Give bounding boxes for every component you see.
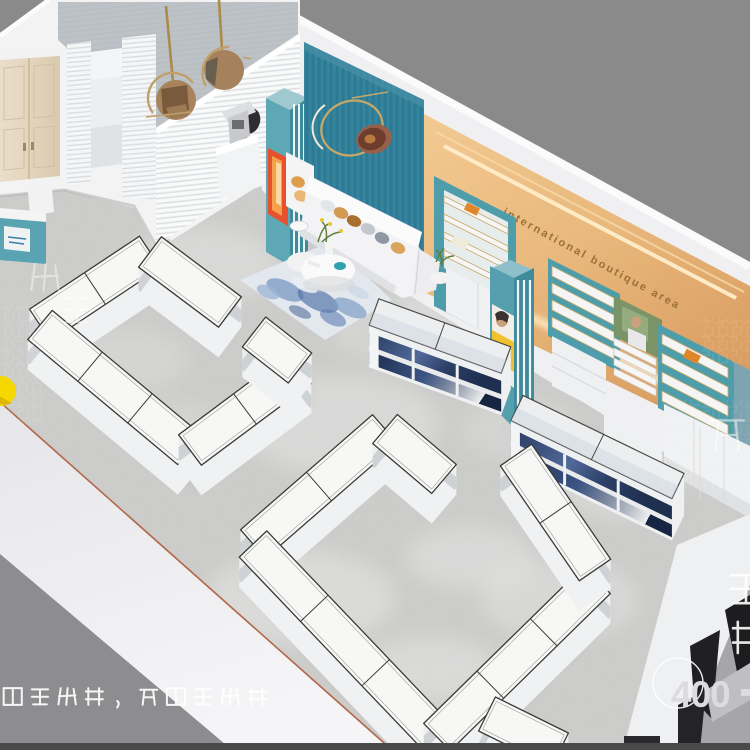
svg-text:400: 400 [671, 674, 730, 715]
